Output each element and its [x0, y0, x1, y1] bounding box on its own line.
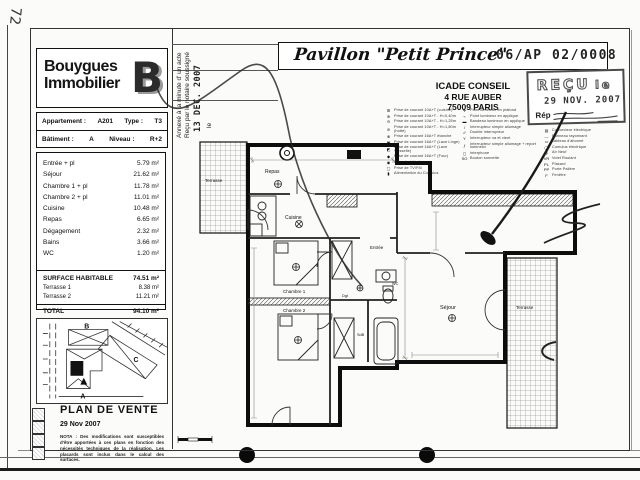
- pen-arrow: [492, 112, 566, 234]
- furniture-fixtures: [250, 196, 398, 364]
- room-label-sdb: SdB: [357, 333, 365, 337]
- room-label-terrasse-1: Terrasse: [205, 178, 223, 183]
- room-label-chambre-2: Chambre 2: [283, 308, 306, 313]
- vent-wall-band: [432, 194, 573, 206]
- chimney-block: [347, 150, 361, 159]
- room-label-repas: Repas: [265, 169, 280, 175]
- corridor-wall: [248, 298, 330, 305]
- room-label-wc: WC: [392, 282, 399, 286]
- pen-swoosh: [157, 64, 362, 286]
- room-label-dgt: Dgt: [342, 294, 349, 298]
- pen-signature-squiggle: [544, 204, 600, 243]
- kitchen-vent: [327, 194, 357, 207]
- bed-1: [274, 241, 318, 285]
- floor-plan-drawing: Terrasse Repas Cuisine Chambre 1 Chambre…: [0, 0, 640, 480]
- room-label-terrasse-2: Terrasse: [516, 305, 534, 310]
- scale-bar: [178, 436, 212, 443]
- room-label-cuisine: Cuisine: [285, 215, 302, 221]
- room-label-chambre-1: Chambre 1: [283, 289, 306, 294]
- terrace-1-area: [200, 142, 247, 233]
- room-label-entree: Entrée: [370, 245, 384, 250]
- room-label-sejour: Séjour: [440, 305, 456, 311]
- ceiling-light-symbols: [275, 181, 456, 344]
